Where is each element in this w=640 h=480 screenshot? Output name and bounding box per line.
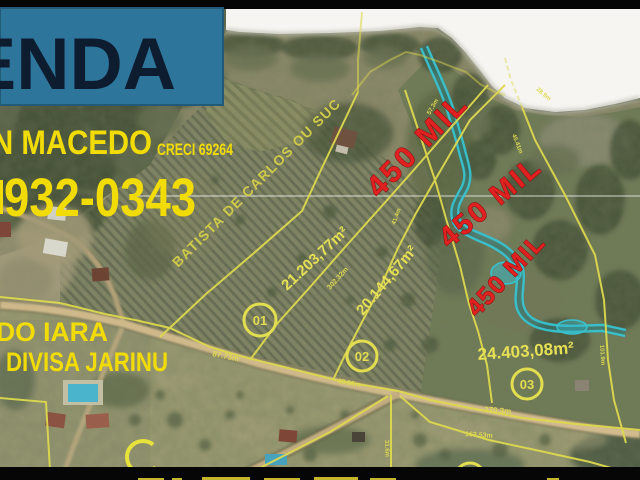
svg-text:CRECI 69264: CRECI 69264 bbox=[157, 140, 233, 159]
svg-text:DO IARA: DO IARA bbox=[0, 317, 108, 347]
svg-text:270.3m: 270.3m bbox=[484, 405, 512, 416]
svg-text:932-0343: 932-0343 bbox=[4, 168, 196, 228]
svg-text:N MACEDO: N MACEDO bbox=[0, 124, 152, 162]
svg-text:03: 03 bbox=[520, 377, 534, 392]
svg-text:DIVISA JARINU: DIVISA JARINU bbox=[6, 347, 168, 377]
svg-text:31.6m: 31.6m bbox=[383, 440, 390, 457]
svg-text:02: 02 bbox=[355, 349, 369, 364]
svg-text:ENDA: ENDA bbox=[0, 24, 176, 105]
svg-text:01: 01 bbox=[253, 313, 267, 328]
